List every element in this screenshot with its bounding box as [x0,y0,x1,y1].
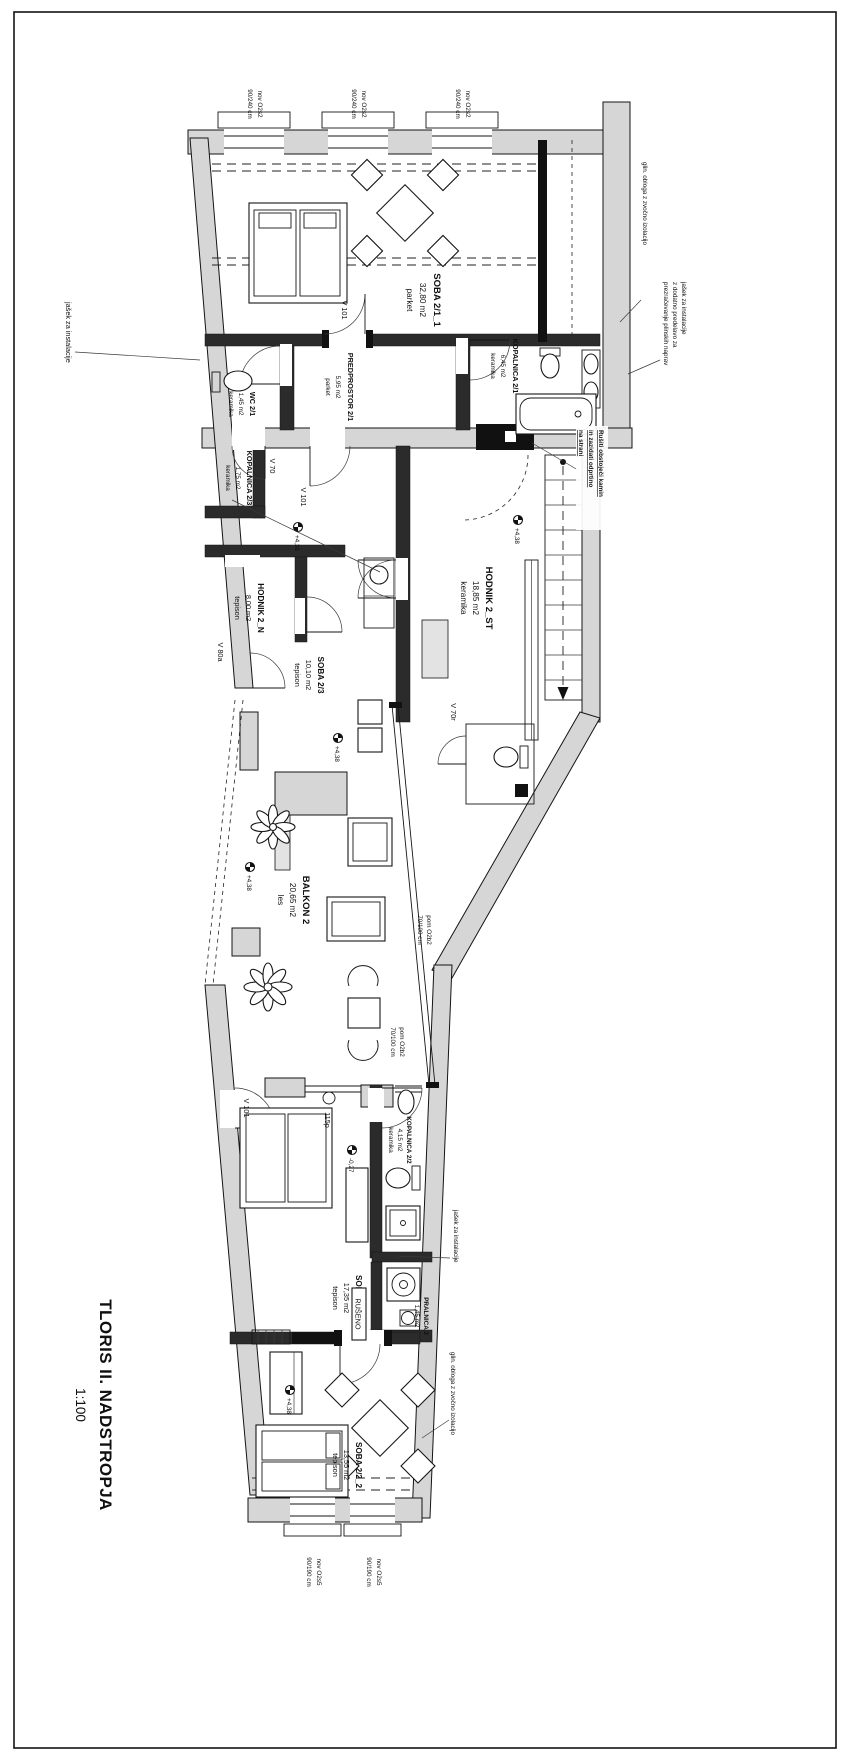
window-label: 70/100 cm [389,1027,396,1056]
annotation-shaft: jašek za instalacije [64,301,73,363]
bed [240,1108,332,1208]
room-floor: tepison [293,663,302,687]
window-label: pom O2b2 [398,1027,405,1057]
annotation-shaft-long: jašek za instalacije [680,281,687,335]
dresser [346,1168,368,1242]
level-value: +4,38 [513,528,520,544]
drawing-title: TLORIS II. NADSTROPJA [96,1299,115,1510]
shower [386,1206,420,1240]
room-area: 4,15 m2 [396,1129,403,1152]
toilet [541,354,559,378]
level-value: +4,38 [285,1398,292,1414]
level-value: +4,38 [333,746,340,762]
annotation-sound: glin. obloga z zvočno izolacijo [641,162,648,245]
window-label: nov O2s2 [464,91,471,118]
room-area: 13,55 m2 [342,1450,351,1480]
hall-closet [422,620,448,678]
room-name: PRALNICA 2 [422,1297,429,1335]
window-label: nov O2s2 [360,91,367,118]
room-floor: keramika [224,465,231,491]
chair [358,700,382,724]
room-area: 18,85 m2 [471,581,480,616]
room-name: PREDPROSTOR 2/1 [346,353,355,421]
toilet [386,1168,410,1188]
room-area: 20,65 m2 [288,883,297,918]
window-mark: 115p [323,1112,332,1128]
room-floor: parket [405,289,414,312]
annotation-demolition: in zazidati odprtino [587,430,594,488]
room-name: SOBA 2/3 [316,656,325,693]
chair [358,728,382,752]
window-label: 90/190 cm [305,1557,312,1586]
room-floor: tepison [233,596,242,620]
room-name: SOBA 2/1_1 [431,273,442,327]
annotation-shaft: jašek za instalacije [452,1209,459,1263]
room-area: 6,45 m2 [499,355,506,378]
window-label: 90/190 cm [365,1557,372,1586]
room-area: 8,00 m2 [244,595,253,621]
plant [251,805,295,849]
annotation-shaft-long: prezračevanje plinskih naprav [662,282,669,366]
level-value: -0,27 [347,1158,354,1173]
floor-plan-sheet: +4,38 +4,38 +4,38 +4,38 -0,27 +4,38 SOBA… [0,0,850,1761]
room-name: KOPALNICA 2/3 [245,451,254,506]
annotation-sound: glin. obloga z zvočno izolacijo [449,1352,456,1435]
room-name: BALKON 2 [300,876,311,925]
room-floor: keramika [489,353,496,379]
level-value: +4,38 [293,535,300,551]
room-floor: parket [324,378,331,396]
room-name: SOBA 2/2_2 [354,1442,363,1489]
door-mark: V 70r [449,703,458,721]
sink [398,1090,414,1114]
wc-shaft [515,784,528,797]
room-floor: les [276,895,285,905]
room-area: 10,10 m2 [304,660,313,690]
window-label: 90/240 cm [350,89,357,118]
door-mark: V 101 [242,1098,251,1117]
room-name: HODNIK 2_N [256,583,265,633]
ruseno-label: RUŠENO [354,1298,363,1330]
window-label: nov O2s5 [375,1559,382,1586]
room-area: 1,45 m2 [237,393,244,416]
window-label: 90/240 cm [454,89,461,118]
level-value: +4,38 [245,875,252,891]
annotation-demolition: na strani [577,430,584,456]
door-mark: V 101 [299,487,308,506]
room-floor: tepison [331,1453,340,1477]
room-floor: keramika [387,1127,394,1153]
room-name: KOPALNICA 2/2 [405,1116,412,1164]
window-label: 90/240 cm [246,89,253,118]
door-mark: V 70 [268,458,277,473]
floor-plan-drawing: +4,38 +4,38 +4,38 +4,38 -0,27 +4,38 SOBA… [0,0,850,1761]
room-area: 32,80 m2 [418,283,427,318]
room-name: HODNIK 2_ST [483,567,494,630]
window-label: pom O2b2 [425,915,432,945]
bed [249,203,347,303]
annotation-demolition: Rušiti obstoječi kamin [597,430,604,497]
room-area: 1,75 m2 [234,467,241,490]
room-area: 1,45 m2 [413,1305,420,1328]
room-area: 17,35 m2 [342,1283,351,1313]
window-label: nov O2s5 [315,1559,322,1586]
room-floor: keramika [227,391,234,417]
annotation-shaft-long: z dodatno predelavo za [671,282,678,348]
drawing-scale: 1:100 [73,1388,88,1422]
plant [244,963,292,1011]
door-mark: V 80a [216,642,225,662]
door-mark: V 101 [340,300,349,319]
room-name: WC 2/1 [248,392,257,416]
window-label: 70/100 cm [416,915,423,944]
window-label: nov O2s2 [256,91,263,118]
room-floor: tepison [331,1286,340,1310]
wall-to-demolish [292,1332,338,1344]
room-name: KOPALNICA 2/1 [511,339,520,394]
room-floor: keramika [459,581,468,615]
duct-band [538,140,547,342]
room-area: 5,95 m2 [334,376,341,399]
